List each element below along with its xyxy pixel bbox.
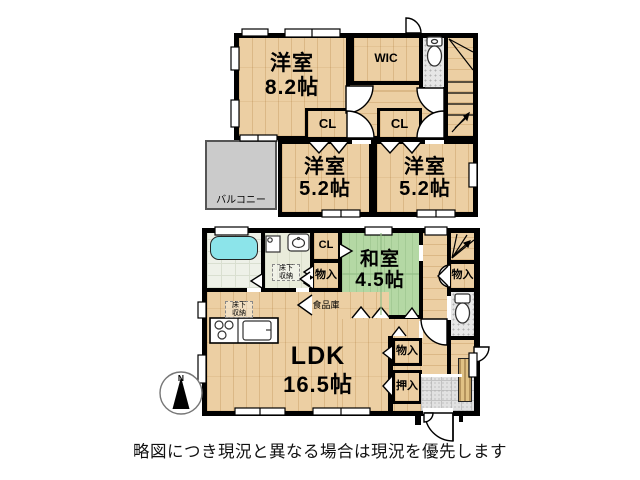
closet2f-left-label: CL: [305, 117, 350, 132]
stairs1f-floor: [451, 233, 474, 260]
pantry-label: 食品庫: [310, 300, 342, 310]
ldk-label: LDK 16.5帖: [238, 342, 398, 398]
wic-label: WIC: [351, 52, 421, 65]
underfloor-storage-kitchen-label: 床下 収納: [225, 301, 253, 318]
closet1f-label: CL: [313, 239, 339, 251]
ufs-wash-line2: 収納: [279, 273, 293, 280]
room-5_2-right-name: 洋室: [404, 156, 446, 178]
storage3-label: 物入: [392, 345, 422, 357]
disclaimer-text: 略図につき現況と異なる場合は現況を優先します: [0, 438, 640, 462]
room-5_2-right-label: 洋室 5.2帖: [370, 156, 480, 201]
tatami-room-size: 4.5帖: [355, 270, 404, 291]
tatami-room-label: 和室 4.5帖: [330, 249, 430, 292]
bathtub: [210, 236, 258, 260]
storage2-label: 物入: [448, 269, 477, 281]
toilet2f-floor: [423, 38, 444, 87]
ufs-kitchen-line1: 床下: [232, 302, 246, 309]
room-8_2-name: 洋室: [270, 52, 314, 75]
room-8_2-size: 8.2帖: [265, 76, 319, 99]
closet2f-right-label: CL: [377, 117, 422, 132]
room-5_2-left-label: 洋室 5.2帖: [270, 156, 380, 201]
floor-plan-canvas: N 洋室 8.2帖 WIC CL CL 洋室 5.2帖 洋室 5.2帖 バルコニ…: [0, 0, 640, 480]
porch-wall-right: [459, 411, 463, 422]
underfloor-storage-washroom-label: 床下 収納: [272, 264, 300, 281]
ufs-kitchen-line2: 収納: [232, 310, 246, 317]
porch-wall-left: [415, 411, 421, 425]
room-5_2-right-size: 5.2帖: [399, 178, 451, 200]
room-5_2-left-size: 5.2帖: [299, 178, 351, 200]
balcony-label: バルコニー: [205, 195, 277, 206]
ldk-size: 16.5帖: [283, 372, 353, 397]
toilet1f-floor: [451, 292, 474, 336]
storage1-label: 物入: [311, 269, 341, 281]
ufs-wash-line1: 床下: [279, 265, 293, 272]
room-8_2-label: 洋室 8.2帖: [237, 52, 347, 99]
ldk-name: LDK: [291, 342, 345, 370]
tatami-room-name: 和室: [360, 249, 400, 270]
shoe-cabinet: [458, 358, 472, 402]
oshiire-label: 押入: [392, 380, 422, 392]
compass-north-label: N: [178, 373, 184, 383]
entrance-step-line: [421, 374, 462, 377]
room-5_2-left-name: 洋室: [304, 156, 346, 178]
stairs2f-floor: [448, 38, 473, 136]
compass-rose: N: [160, 372, 202, 414]
